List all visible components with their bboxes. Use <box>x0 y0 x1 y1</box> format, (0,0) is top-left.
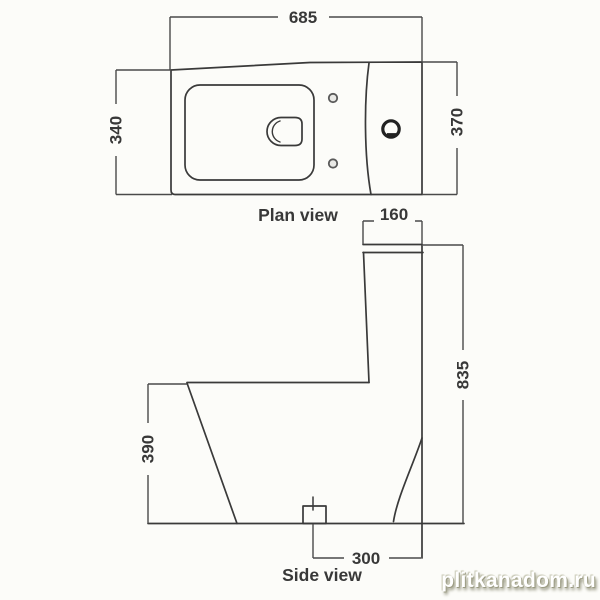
plan-view-dimensions: 685 340 370 <box>107 8 467 195</box>
side-outlet-drain <box>303 506 326 524</box>
technical-drawing-page: 685 340 370 Plan view <box>0 0 600 600</box>
dim-label-370: 370 <box>448 108 467 136</box>
hinge-bolt-icon <box>329 159 337 167</box>
side-view-drawing <box>148 245 464 559</box>
diagram-canvas: 685 340 370 Plan view <box>0 0 600 600</box>
plan-view-caption: Plan view <box>258 205 338 225</box>
dim-label-685: 685 <box>289 8 317 27</box>
plan-seat-outline <box>185 85 314 180</box>
hinge-bolt-icon <box>329 94 337 102</box>
watermark: plitkanadom.ru <box>441 569 596 593</box>
side-bowl-front-slant <box>187 383 237 524</box>
plan-flush-hole-inner-arc <box>272 121 280 142</box>
plan-view-drawing <box>171 62 422 195</box>
dim-label-390: 390 <box>139 435 158 463</box>
side-view-caption: Side view <box>282 565 362 585</box>
dim-label-340: 340 <box>107 116 126 144</box>
dim-line-160 <box>363 221 422 244</box>
side-tank-front-edge <box>364 253 370 383</box>
side-base-back-curve <box>394 438 423 522</box>
dim-label-160: 160 <box>380 205 408 224</box>
side-tank-lid <box>363 245 423 253</box>
plan-tank-divider-curve <box>365 63 371 195</box>
dim-label-835: 835 <box>454 361 473 389</box>
